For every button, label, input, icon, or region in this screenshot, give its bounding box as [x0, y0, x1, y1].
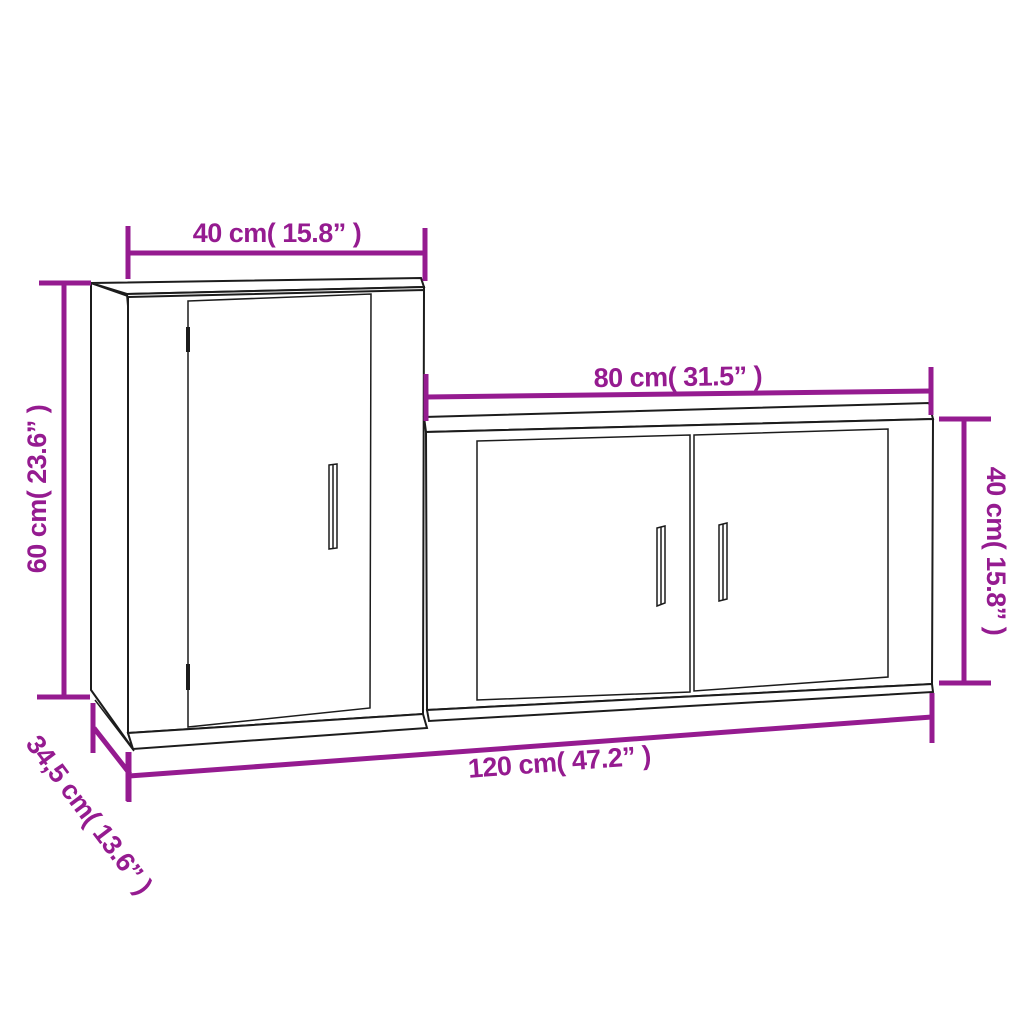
tall-cabinet-door [188, 294, 371, 727]
diagram-canvas: 40 cm( 15.8” ) 60 cm( 23.6” ) 80 cm( 31.… [0, 0, 1024, 1024]
dimension-label-wide-height: 40 cm( 15.8” ) [981, 467, 1011, 636]
dimension-wide-cabinet-height: 40 cm( 15.8” ) [939, 419, 1011, 683]
dimension-diagram: 40 cm( 15.8” ) 60 cm( 23.6” ) 80 cm( 31.… [0, 0, 1024, 1024]
dimension-label-depth: 34,5 cm( 13.6” ) [20, 730, 158, 900]
dimension-label-wide-width: 80 cm( 31.5” ) [593, 361, 762, 393]
tall-cabinet-side-panel [91, 283, 133, 749]
dimension-label-tall-height: 60 cm( 23.6” ) [22, 405, 52, 574]
wide-cabinet [424, 403, 933, 721]
dimension-tall-cabinet-height: 60 cm( 23.6” ) [22, 283, 91, 697]
dimension-tall-cabinet-width: 40 cm( 15.8” ) [128, 218, 425, 281]
dimension-label-tall-width: 40 cm( 15.8” ) [193, 218, 362, 248]
tall-cabinet [91, 278, 427, 751]
